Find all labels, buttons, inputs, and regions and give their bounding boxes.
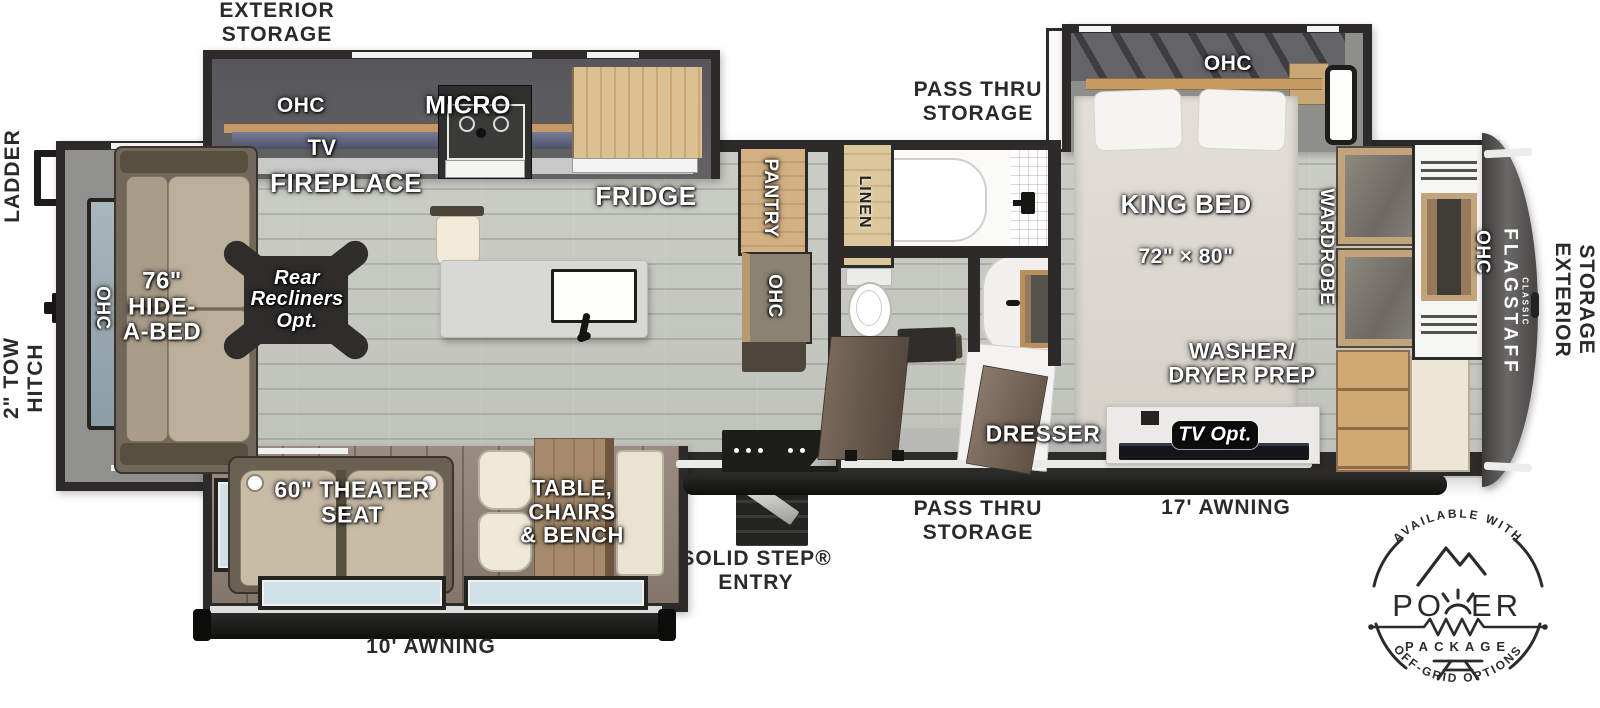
rv-floorplan-canvas: OHC 76" HIDE- A-BED <box>0 0 1600 708</box>
brand-sub: CLASSIC <box>1521 228 1530 376</box>
bedroom-chest <box>1336 350 1410 472</box>
dresser-label: DRESSER <box>986 422 1101 447</box>
label-awning-17: 17' AWNING <box>1161 496 1291 520</box>
pantry-label: PANTRY <box>760 159 780 238</box>
label-exterior-storage-front: EXTERIOR STORAGE <box>1550 242 1598 357</box>
washer-dryer-label: WASHER/ DRYER PREP <box>1168 339 1315 386</box>
fridge-front <box>572 158 698 173</box>
island-sink <box>551 269 637 323</box>
theater-seat-label: 60" THEATER SEAT <box>274 477 429 526</box>
entry-door-foot <box>892 450 904 461</box>
wall-bath-mid <box>968 256 980 352</box>
table-chairs-label: TABLE, CHAIRS & BENCH <box>520 477 624 548</box>
slide-edge <box>352 52 532 58</box>
ohc-kitchen-label: OHC <box>277 95 325 117</box>
king-bed-size: 72" × 80" <box>1120 247 1251 269</box>
bedroom-side-panel <box>1410 356 1470 472</box>
svg-text:AVAILABLE WITH: AVAILABLE WITH <box>1390 506 1526 545</box>
bed-pillow <box>1197 88 1287 151</box>
cabinet-below-ohc <box>742 342 806 372</box>
shower-head-icon <box>1021 192 1035 214</box>
awning-end-cap <box>658 609 676 641</box>
slide-bottom-window <box>258 576 446 610</box>
tv-strip <box>232 132 607 149</box>
badge-available-text: AVAILABLE WITH <box>1390 506 1526 545</box>
recliners-opt-label: Rear Recliners Opt. <box>251 268 344 332</box>
kitchen-stool <box>430 206 484 264</box>
fridge-cabinet <box>572 67 702 158</box>
linen-label: LINEN <box>855 176 873 229</box>
toilet <box>846 268 890 336</box>
sofa-armrest <box>120 151 248 173</box>
fridge-label: FRIDGE <box>595 183 696 211</box>
entry-door-foot <box>845 450 857 461</box>
king-bed-title: KING BED <box>1120 191 1251 219</box>
label-awning-10: 10' AWNING <box>366 635 496 659</box>
line-end-dot <box>1368 624 1374 630</box>
kitchen-island <box>440 260 648 338</box>
sun-icon <box>1443 590 1473 613</box>
ohc-bedroom-label: OHC <box>1204 53 1252 75</box>
king-bed-label: KING BED 72" × 80" <box>1120 163 1251 297</box>
label-tow-hitch: 2" TOW HITCH <box>0 337 48 419</box>
badge-package-text: PACKAGE <box>1405 639 1511 654</box>
vanity-faucet-icon <box>1006 300 1020 306</box>
awning-end-cap <box>193 609 211 641</box>
slide-bottom-window <box>464 576 648 610</box>
label-pass-thru-bottom: PASS THRU STORAGE <box>914 497 1043 545</box>
mountain-icon <box>1418 548 1485 585</box>
ohc-bed-shelf <box>1086 78 1322 90</box>
tv-opt-label: TV Opt. <box>1178 424 1251 445</box>
cap-handle <box>1531 292 1539 318</box>
fireplace-label: FIREPLACE <box>270 170 422 198</box>
pantry-ohc-label: OHC <box>764 274 784 318</box>
tv-bracket <box>1141 411 1159 425</box>
bed-pillow <box>1093 88 1183 151</box>
brand-name: FLAGSTAFF <box>1499 228 1521 376</box>
wall-shower-bottom <box>841 246 1061 258</box>
power-package-badge: AVAILABLE WITH OFF-GRID OPTIONS PO ER PA… <box>1358 498 1558 703</box>
badge-power-left-text: PO <box>1392 588 1445 623</box>
line-end-dot <box>1542 624 1548 630</box>
tv-label: TV <box>307 136 336 160</box>
shower-head-icon <box>1013 200 1023 206</box>
solid-step <box>736 488 808 546</box>
brand-label: FLAGSTAFF CLASSIC <box>1499 228 1530 376</box>
awning-roller-17 <box>683 474 1447 495</box>
bedroom-slide-window <box>1325 65 1357 145</box>
wardrobe-label: WARDROBE <box>1316 189 1336 306</box>
label-pass-thru-top: PASS THRU STORAGE <box>914 78 1043 126</box>
label-solid-step-entry: SOLID STEP® ENTRY <box>680 547 831 595</box>
vanity <box>982 254 1052 356</box>
hide-a-bed-label: 76" HIDE- A-BED <box>123 268 202 345</box>
label-ladder: LADDER <box>1 129 25 223</box>
ohc-front-label: OHC <box>1472 230 1492 274</box>
micro-label: MICRO <box>425 93 511 120</box>
label-exterior-storage-rear: EXTERIOR STORAGE <box>219 0 334 47</box>
entry-door <box>817 336 910 460</box>
slide-edge <box>587 52 639 58</box>
ohc-rear-label: OHC <box>92 286 112 330</box>
slide-edge <box>1079 26 1111 32</box>
cap-chrome-trim <box>1484 148 1532 159</box>
badge-power-right-text: ER <box>1471 588 1522 623</box>
slide-edge <box>1307 26 1339 32</box>
